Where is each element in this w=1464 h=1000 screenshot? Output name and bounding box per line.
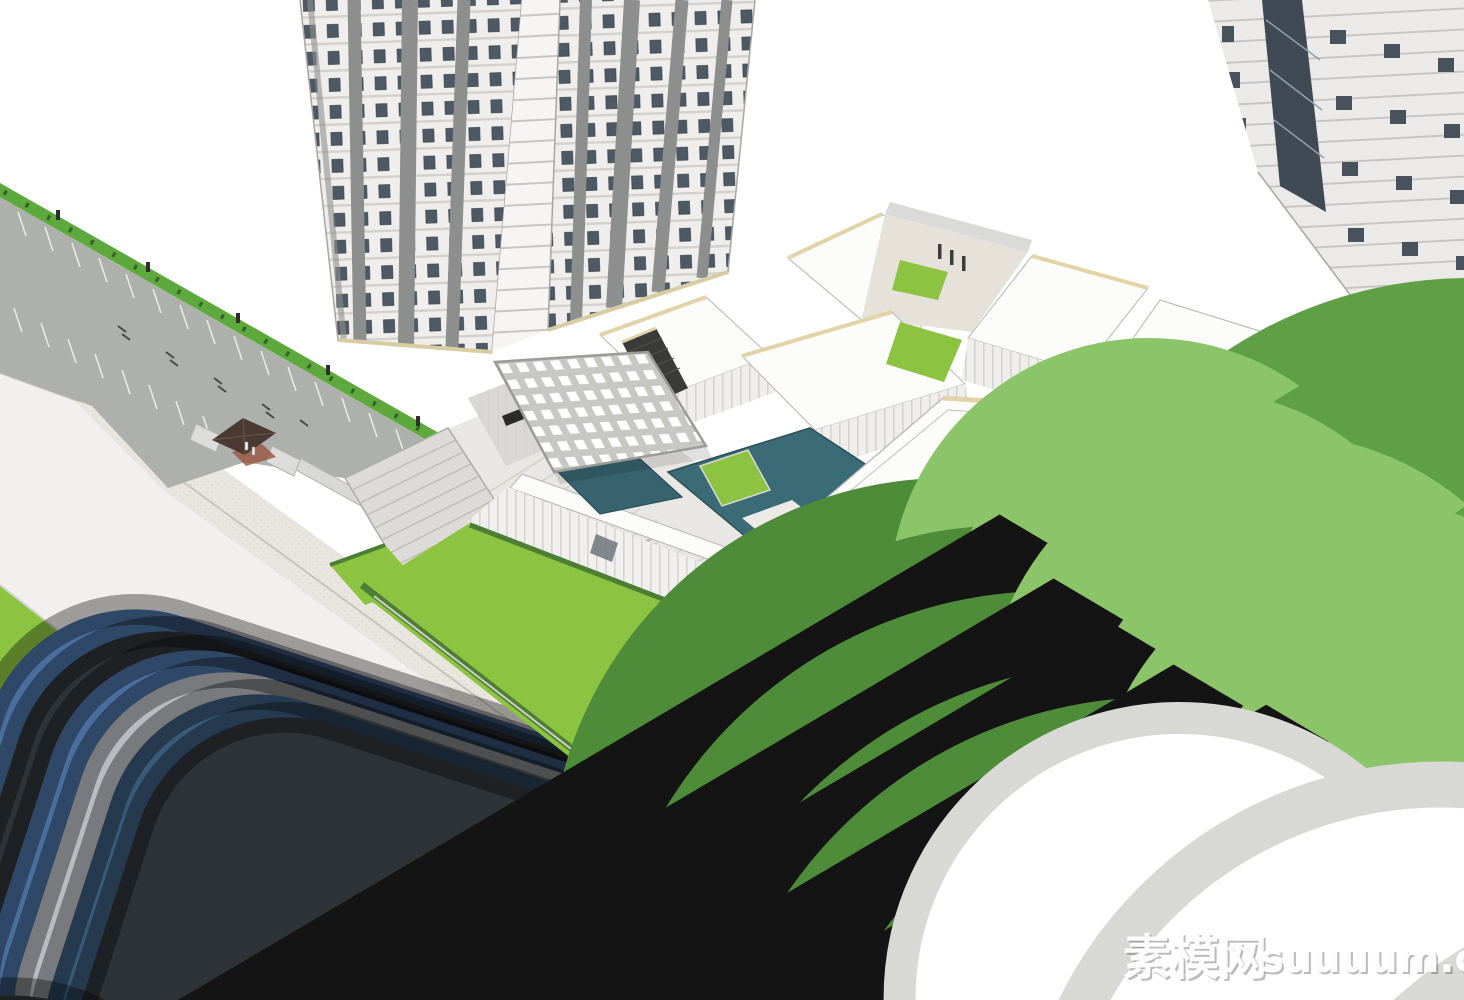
watermark-text-latin: suuuum.com — [1260, 936, 1464, 982]
figure — [245, 442, 248, 450]
figure — [252, 447, 255, 455]
tower-left — [300, 0, 522, 352]
watermark-text-cjk: 素模网 — [1123, 930, 1267, 986]
architectural-rendering: 素模网 suuuum.com 素模网 suuuum.com — [0, 0, 1464, 1000]
watermark: 素模网 suuuum.com 素模网 suuuum.com — [1123, 930, 1464, 988]
